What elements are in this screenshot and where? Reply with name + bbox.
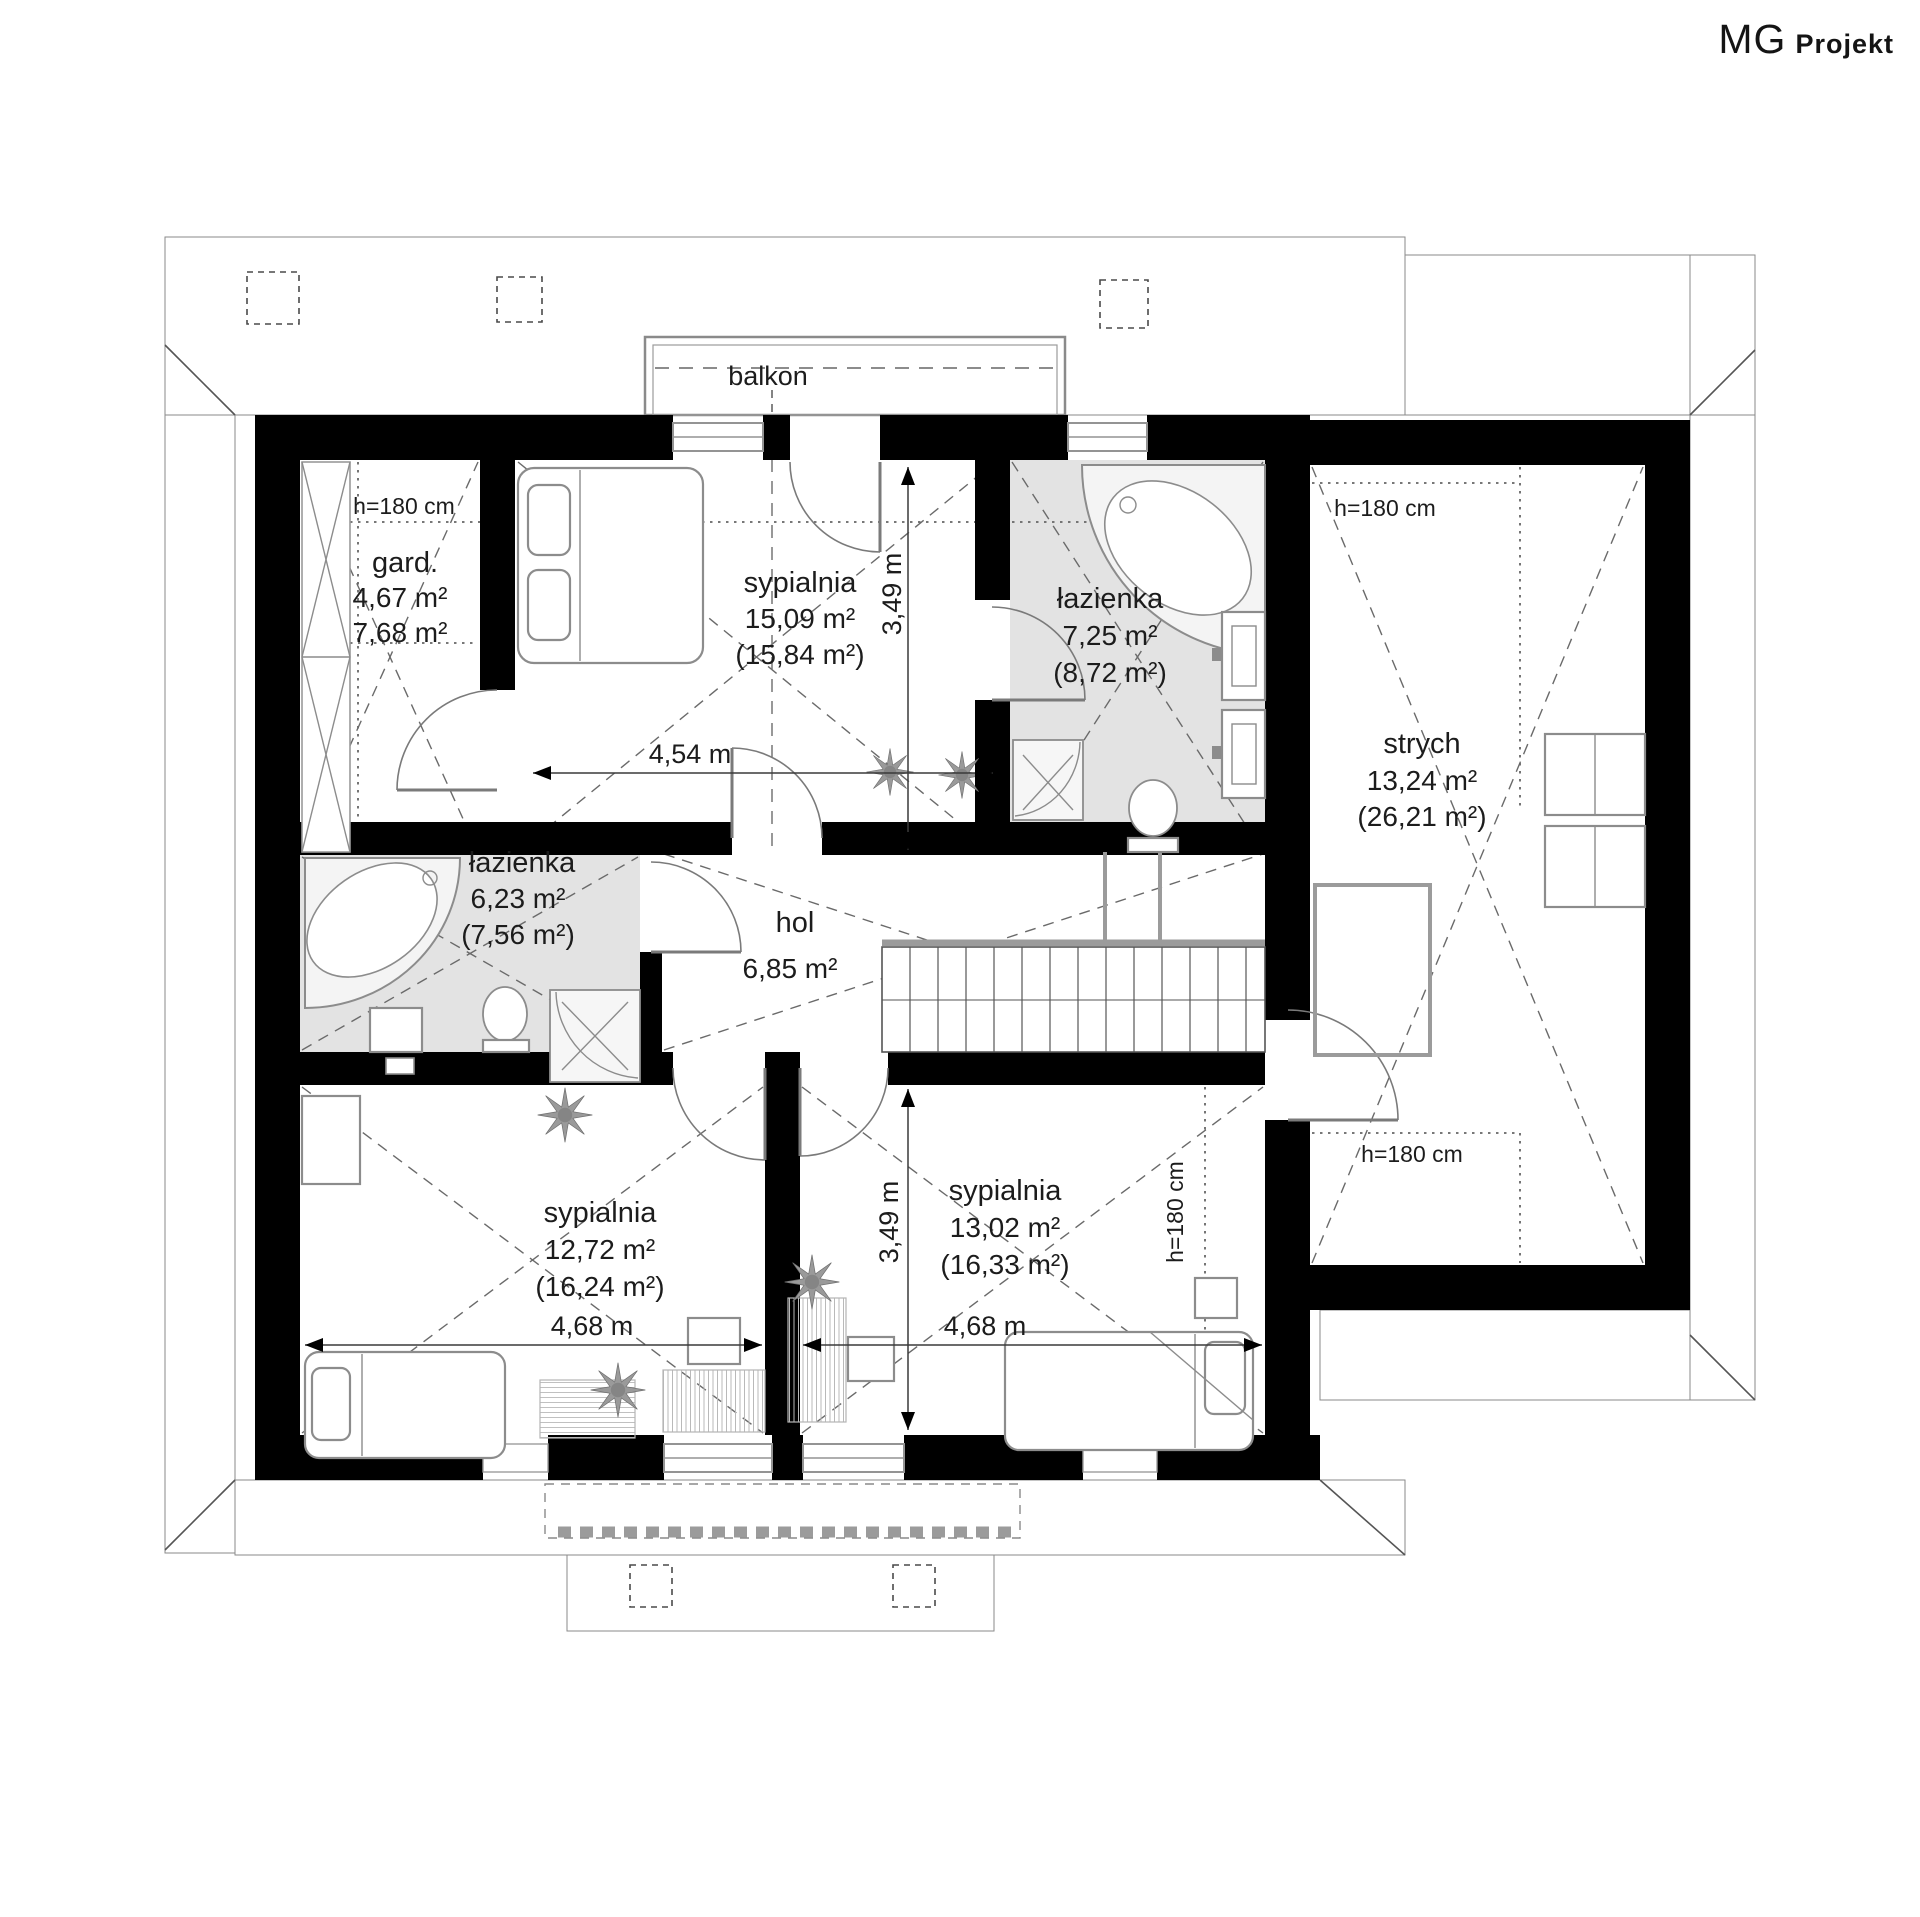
wall-ext-bottom-c	[772, 1435, 803, 1480]
roof-band-top-right	[1405, 255, 1755, 415]
bedroom-bl-name: sypialnia	[544, 1197, 658, 1229]
wall-hol-bottom-c	[888, 1052, 1265, 1085]
window	[673, 423, 763, 451]
balcony-door	[790, 462, 880, 552]
bedroom-bl-door	[673, 1068, 765, 1160]
roof-band-left	[165, 415, 235, 1553]
h180-bedroom-br: h=180 cm	[1162, 1161, 1188, 1263]
hip-line-top-right	[1690, 350, 1755, 415]
roof-band-right	[1690, 255, 1755, 1400]
hip-line-top-left	[165, 345, 235, 415]
bedroom-br-name: sypialnia	[949, 1175, 1063, 1207]
wall-strych-left-lower	[1265, 1120, 1310, 1435]
chimney	[630, 1565, 672, 1607]
chest	[1195, 1278, 1237, 1318]
hip-line-bottom-right	[1690, 1335, 1755, 1400]
wall-ext-left	[255, 415, 300, 1480]
plant-icon	[866, 748, 913, 795]
wall-ext-right	[1645, 460, 1690, 1310]
window	[664, 1444, 772, 1472]
hol-area: 6,85 m²	[743, 953, 838, 984]
chimney	[1100, 280, 1148, 328]
window	[1068, 423, 1147, 451]
dim-label-bl-width: 4,68 m	[551, 1311, 634, 1341]
window	[803, 1444, 904, 1472]
wall-bath-top-left-b	[975, 700, 1010, 822]
gard-name: gard.	[372, 547, 438, 579]
wall-ext-top-b	[763, 415, 790, 460]
bathroom-top-area2: (8,72 m²)	[1053, 657, 1167, 688]
bedroom-top-area: 15,09 m²	[745, 603, 856, 634]
dim-top-width	[533, 766, 993, 780]
nightstand	[848, 1337, 894, 1381]
balcony-label: balkon	[728, 361, 808, 391]
gard-area: 4,67 m²	[353, 582, 448, 613]
bedroom-br-area2: (16,33 m²)	[940, 1249, 1069, 1280]
chimney	[893, 1565, 935, 1607]
bathroom-left-area2: (7,56 m²)	[461, 919, 575, 950]
roof-band-bottom-right	[1320, 1310, 1690, 1400]
shower	[550, 990, 640, 1082]
bathroom-top-name: łazienka	[1057, 583, 1164, 615]
h180-gard: h=180 cm	[353, 493, 455, 519]
bed	[1005, 1332, 1253, 1450]
bedroom-top-name: sypialnia	[744, 567, 858, 599]
bed	[518, 468, 703, 663]
bedroom-br-door	[800, 1068, 888, 1156]
bedroom-br-area: 13,02 m²	[950, 1212, 1061, 1243]
floor-plan-page: MG Projekt	[0, 0, 1920, 1917]
wall-ext-top-a	[255, 415, 673, 460]
rug	[788, 1298, 846, 1422]
wardrobe	[302, 462, 350, 852]
dim-label-top-width: 4,54 m	[649, 739, 732, 769]
wall-wing-top	[1310, 420, 1690, 465]
h180-strych-top: h=180 cm	[1334, 495, 1436, 521]
bathroom-top-area: 7,25 m²	[1063, 620, 1158, 651]
roof-band-bottom	[235, 1480, 1405, 1555]
wall-ext-bottom-b	[548, 1435, 664, 1480]
hol-name: hol	[776, 907, 815, 939]
bedroom-bl-area2: (16,24 m²)	[535, 1271, 664, 1302]
wall-wing-bottom	[1310, 1265, 1690, 1310]
bathroom-left-area: 6,23 m²	[471, 883, 566, 914]
nightstand	[688, 1318, 740, 1364]
dim-top-depth	[901, 467, 915, 850]
balcony	[645, 337, 1065, 415]
bathroom-left-name: łazienka	[469, 847, 576, 879]
staircase	[882, 852, 1430, 1055]
wall-mid-right	[822, 822, 1265, 855]
stairwell-railing	[1315, 885, 1430, 1055]
gard-area2: 7,68 m²	[353, 617, 448, 648]
wall-gard-right	[480, 460, 515, 690]
bedroom-bl-area: 12,72 m²	[545, 1234, 656, 1265]
bedroom-top-door	[732, 748, 822, 838]
strych-name: strych	[1383, 728, 1460, 760]
plant-icon	[591, 1363, 646, 1418]
dim-label-bottom-depth: 3,49 m	[874, 1181, 904, 1264]
wall-ext-top-d	[1147, 415, 1310, 460]
plant-icon	[785, 1255, 840, 1310]
h180-strych-bottom: h=180 cm	[1361, 1141, 1463, 1167]
attic-shelves	[1545, 734, 1645, 907]
strych-area: 13,24 m²	[1367, 765, 1478, 796]
hip-line-bottom-left	[165, 1480, 235, 1550]
wall-strych-left-upper	[1265, 460, 1310, 1020]
wall-hol-bottom-b	[765, 1052, 800, 1085]
dim-label-br-width: 4,68 m	[944, 1311, 1027, 1341]
plant-icon	[538, 1088, 593, 1143]
toilet	[483, 987, 529, 1052]
chimney	[497, 277, 542, 322]
chimney	[247, 272, 299, 324]
hip-line-bottom-step	[1320, 1480, 1405, 1555]
toilet	[1128, 780, 1178, 852]
dresser	[302, 1096, 360, 1184]
strych-area2: (26,21 m²)	[1357, 801, 1486, 832]
attic-floor-plan-drawing: balkon gard. 4,67 m² 7,68 m² sypialnia 1…	[0, 0, 1920, 1917]
shower	[1013, 740, 1083, 820]
bedroom-top-area2: (15,84 m²)	[735, 639, 864, 670]
wall-ext-top-c	[880, 415, 1068, 460]
wall-bath-top-left-a	[975, 460, 1010, 600]
strych-door	[1288, 1010, 1398, 1120]
rug	[663, 1370, 765, 1432]
dim-label-top-depth: 3,49 m	[877, 553, 907, 636]
bed	[305, 1352, 505, 1458]
